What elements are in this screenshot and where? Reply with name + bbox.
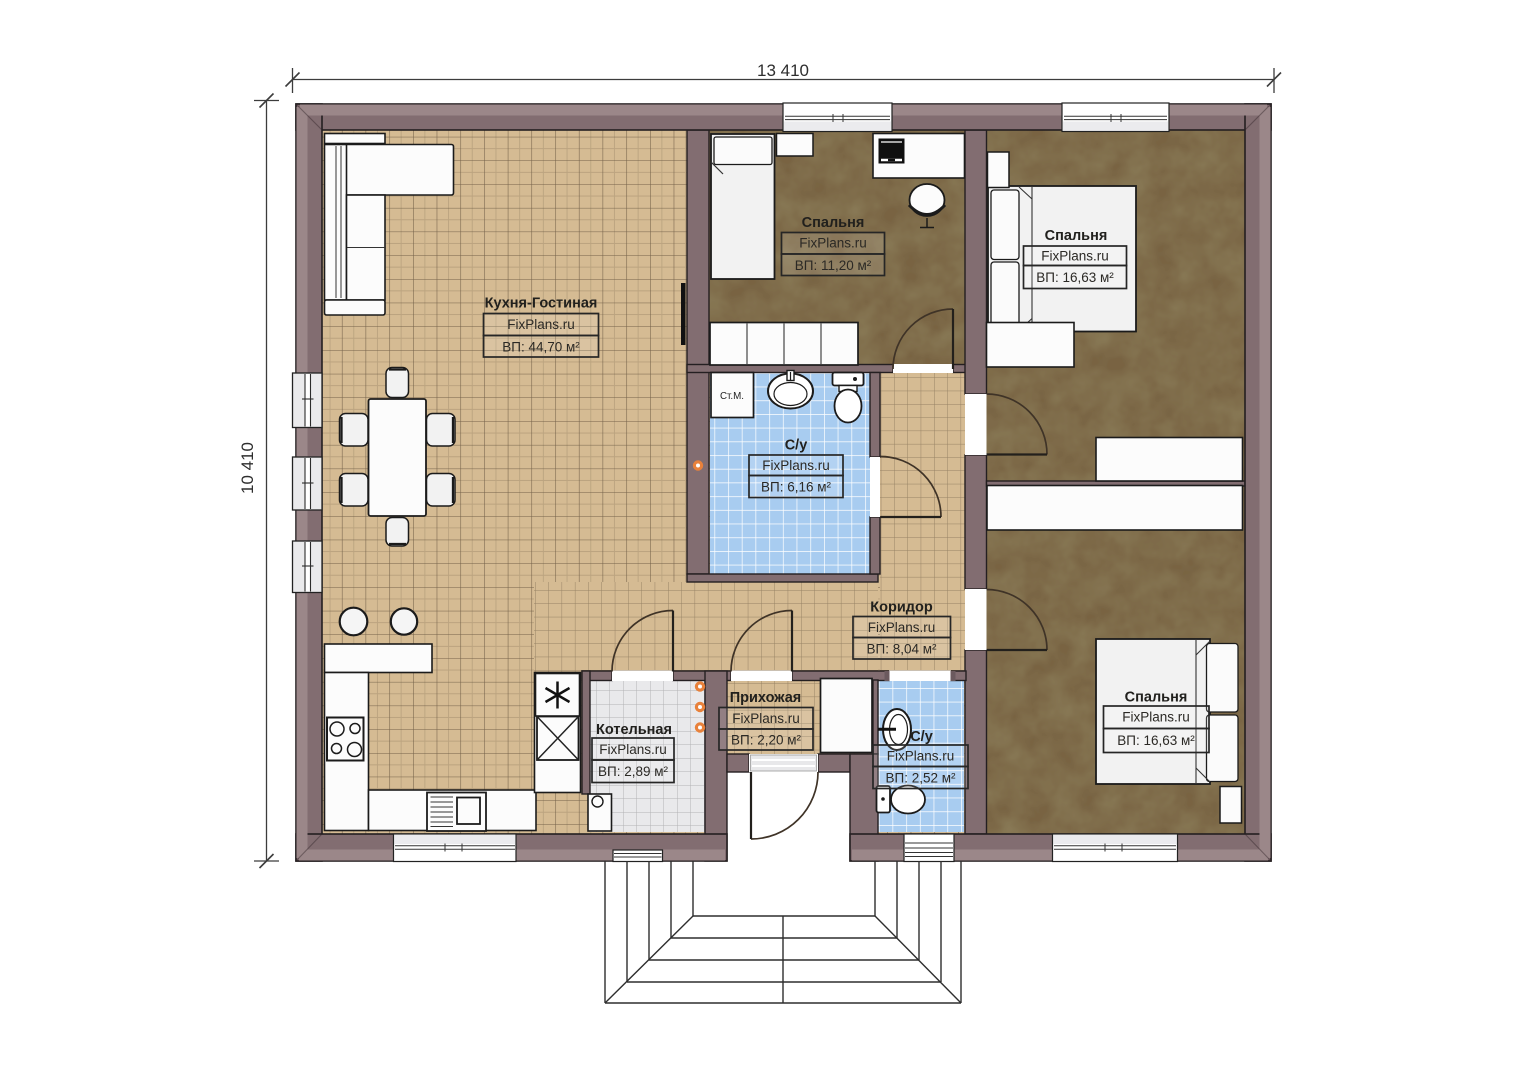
svg-text:ВП: 11,20 м²: ВП: 11,20 м² (795, 258, 872, 273)
svg-text:FixPlans.ru: FixPlans.ru (599, 742, 667, 757)
svg-text:13 410: 13 410 (757, 61, 809, 80)
svg-text:ВП: 8,04 м²: ВП: 8,04 м² (866, 642, 937, 657)
svg-text:ВП: 2,20 м²: ВП: 2,20 м² (731, 733, 802, 748)
svg-text:Спальня: Спальня (1125, 690, 1188, 706)
svg-text:FixPlans.ru: FixPlans.ru (1041, 249, 1109, 264)
svg-text:ВП: 16,63 м²: ВП: 16,63 м² (1036, 270, 1114, 285)
svg-text:FixPlans.ru: FixPlans.ru (732, 711, 800, 726)
svg-text:С/у: С/у (785, 438, 808, 454)
svg-text:Котельная: Котельная (596, 722, 672, 738)
svg-text:10 410: 10 410 (238, 442, 257, 494)
svg-text:FixPlans.ru: FixPlans.ru (868, 620, 936, 635)
svg-text:ВП: 2,52 м²: ВП: 2,52 м² (885, 771, 956, 786)
svg-text:ВП: 16,63 м²: ВП: 16,63 м² (1117, 733, 1195, 748)
svg-text:FixPlans.ru: FixPlans.ru (887, 749, 955, 764)
svg-text:ВП: 44,70 м²: ВП: 44,70 м² (502, 340, 580, 355)
svg-text:FixPlans.ru: FixPlans.ru (1122, 710, 1190, 725)
svg-text:С/у: С/у (910, 729, 933, 745)
svg-text:Ст.М.: Ст.М. (720, 391, 744, 402)
svg-text:Спальня: Спальня (802, 215, 865, 231)
svg-text:Прихожая: Прихожая (730, 690, 802, 706)
svg-text:FixPlans.ru: FixPlans.ru (507, 317, 575, 332)
svg-text:FixPlans.ru: FixPlans.ru (762, 458, 830, 473)
svg-text:FixPlans.ru: FixPlans.ru (799, 236, 867, 251)
svg-text:Спальня: Спальня (1045, 228, 1108, 244)
svg-text:ВП: 2,89 м²: ВП: 2,89 м² (598, 764, 669, 779)
svg-text:Кухня-Гостиная: Кухня-Гостиная (485, 296, 598, 312)
svg-text:Коридор: Коридор (870, 600, 933, 616)
svg-text:ВП: 6,16 м²: ВП: 6,16 м² (761, 480, 832, 495)
